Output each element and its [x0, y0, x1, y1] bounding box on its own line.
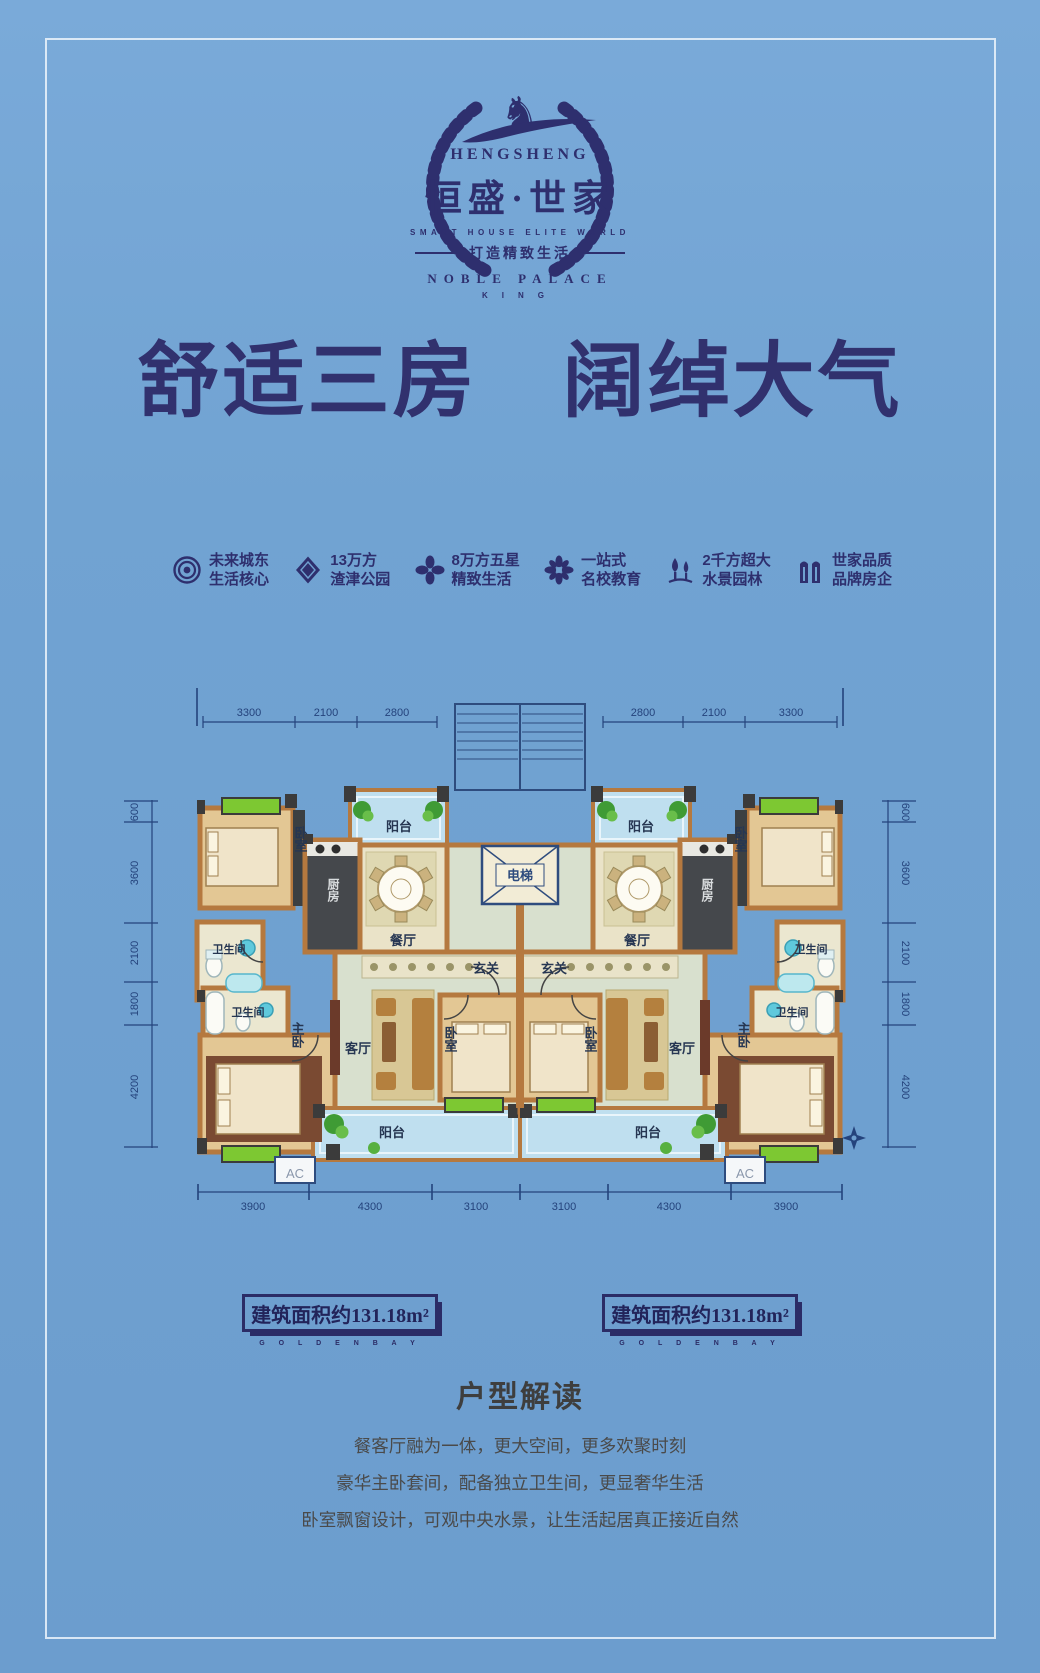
logo: HENGSHENG 恒盛·世家 SMART HOUSE ELITE WORLD … — [0, 84, 1040, 300]
analysis-lines: 餐客厅融为一体，更大空间，更多欢聚时刻 豪华主卧套间，配备独立卫生间，更显奢华生… — [0, 1428, 1040, 1539]
floor-plan: 阳台 阳台 卧室 卧室 厨房 厨房 餐厅 餐厅 玄关 玄关 卫生间 卫生间 卫生… — [0, 660, 1040, 1230]
compass-icon — [842, 1126, 866, 1150]
area-badge-sub: G O L D E N B A Y — [602, 1340, 798, 1347]
dim-label: 2100 — [899, 941, 911, 965]
poster: ♞ HENGSHENG 恒盛·世家 SMART HOUSE ELITE WORL… — [0, 0, 1040, 1673]
dim-label: 600 — [129, 803, 141, 821]
room-label: 玄关 — [473, 961, 499, 976]
analysis-line: 卧室飘窗设计，可观中央水景，让生活起居真正接近自然 — [0, 1502, 1040, 1539]
dim-label: 3900 — [241, 1201, 265, 1213]
slogan-dash-left — [415, 252, 459, 254]
dim-label: 2100 — [129, 941, 141, 965]
feature-line1: 8万方五星 — [452, 551, 520, 570]
room-label: 卫生间 — [213, 942, 246, 956]
page-title: 舒适三房 阔绰大气 — [0, 314, 1040, 433]
dim-label: 4200 — [129, 1075, 141, 1099]
dim-label: 3600 — [129, 861, 141, 885]
ac-label: AC — [286, 1166, 304, 1181]
feature-item: 8万方五星精致生活 — [415, 551, 520, 589]
room-label: 餐厅 — [623, 933, 650, 948]
target-icon — [172, 555, 202, 585]
slogan-dash-right — [581, 252, 625, 254]
room-label: 阳台 — [628, 819, 654, 834]
buildings-icon — [795, 555, 825, 585]
room-label: 卧室 — [733, 826, 748, 853]
dim-label: 3900 — [774, 1201, 798, 1213]
room-label: 阳台 — [379, 1125, 405, 1140]
flower-icon — [544, 555, 574, 585]
dim-label: 2100 — [314, 707, 338, 719]
dim-label: 2800 — [631, 707, 655, 719]
area-badge-left: 建筑面积约131.18m² G O L D E N B A Y — [242, 1294, 438, 1347]
analysis-line: 豪华主卧套间，配备独立卫生间，更显奢华生活 — [0, 1465, 1040, 1502]
room-label: 厨房 — [700, 877, 714, 903]
party-wall — [516, 904, 524, 1108]
feature-item: 2千方超大水景园林 — [665, 551, 770, 589]
feature-line2: 名校教育 — [581, 570, 641, 589]
analysis-title: 户型解读 — [0, 1372, 1040, 1416]
area-badge-box: 建筑面积约131.18m² — [602, 1294, 798, 1332]
dim-label: 1800 — [129, 992, 141, 1016]
dim-label: 3100 — [552, 1201, 576, 1213]
room-label: 卫生间 — [776, 1005, 809, 1019]
room-label: 卫生间 — [232, 1005, 265, 1019]
feature-line1: 世家品质 — [832, 551, 892, 570]
clover-icon — [415, 555, 445, 585]
room-label: 客厅 — [345, 1041, 371, 1056]
dim-label: 1800 — [899, 992, 911, 1016]
logo-king-en: KING — [482, 291, 558, 300]
feature-item: 未来城东生活核心 — [172, 551, 269, 589]
feature-line2: 水景园林 — [702, 570, 770, 589]
dim-label: 2800 — [385, 707, 409, 719]
feature-line1: 未来城东 — [209, 551, 269, 570]
room-label: 阳台 — [635, 1125, 661, 1140]
analysis-section: 户型解读 餐客厅融为一体，更大空间，更多欢聚时刻 豪华主卧套间，配备独立卫生间，… — [0, 1372, 1040, 1539]
logo-palace-en: NOBLE PALACE — [427, 271, 612, 287]
analysis-line: 餐客厅融为一体，更大空间，更多欢聚时刻 — [0, 1428, 1040, 1465]
dim-label: 3300 — [237, 707, 261, 719]
feature-line2: 品牌房企 — [832, 570, 892, 589]
logo-subtitle-en: SMART HOUSE ELITE WORLD — [410, 228, 630, 237]
dim-label: 2100 — [702, 707, 726, 719]
logo-slogan: 打造精致生活 — [415, 243, 625, 263]
left-unit — [197, 786, 520, 1183]
dim-label: 4300 — [657, 1201, 681, 1213]
feature-line2: 生活核心 — [209, 570, 269, 589]
room-label: 餐厅 — [389, 933, 416, 948]
room-label: 客厅 — [669, 1041, 695, 1056]
room-label: 卧室 — [583, 1026, 598, 1053]
logo-brand-cn: 恒盛·世家 — [425, 168, 615, 222]
gem-icon — [293, 555, 323, 585]
ac-label: AC — [736, 1166, 754, 1181]
area-badge-sub: G O L D E N B A Y — [242, 1340, 438, 1347]
logo-slogan-text: 打造精致生活 — [469, 243, 571, 263]
feature-line1: 2千方超大 — [702, 551, 770, 570]
room-label: 阳台 — [386, 819, 412, 834]
dim-label: 3100 — [464, 1201, 488, 1213]
room-label: 卧室 — [443, 1026, 458, 1053]
stairwell — [455, 704, 585, 790]
feature-item: 13万方渣津公园 — [293, 551, 390, 589]
area-badge-box: 建筑面积约131.18m² — [242, 1294, 438, 1332]
area-badge-right: 建筑面积约131.18m² G O L D E N B A Y — [602, 1294, 798, 1347]
feature-row: 未来城东生活核心 13万方渣津公园 8万方五星精致生活 — [172, 551, 892, 589]
elevator-label: 电梯 — [507, 868, 533, 883]
feature-line1: 一站式 — [581, 551, 641, 570]
dim-label: 4300 — [358, 1201, 382, 1213]
room-label: 卫生间 — [795, 942, 828, 956]
right-unit — [520, 786, 843, 1183]
fountain-icon — [665, 555, 695, 585]
feature-item: 一站式名校教育 — [544, 551, 641, 589]
feature-item: 世家品质品牌房企 — [795, 551, 892, 589]
dim-label: 3300 — [779, 707, 803, 719]
feature-line1: 13万方 — [330, 551, 390, 570]
dim-label: 4200 — [899, 1075, 911, 1099]
dim-label: 600 — [899, 803, 911, 821]
room-label: 厨房 — [326, 877, 340, 903]
dim-label: 3600 — [899, 861, 911, 885]
room-label: 卧室 — [293, 826, 308, 853]
room-label: 主卧 — [736, 1021, 751, 1049]
feature-line2: 精致生活 — [452, 570, 520, 589]
room-label: 玄关 — [541, 961, 567, 976]
logo-brand-en: HENGSHENG — [450, 146, 589, 164]
room-label: 主卧 — [290, 1021, 305, 1049]
feature-line2: 渣津公园 — [330, 570, 390, 589]
